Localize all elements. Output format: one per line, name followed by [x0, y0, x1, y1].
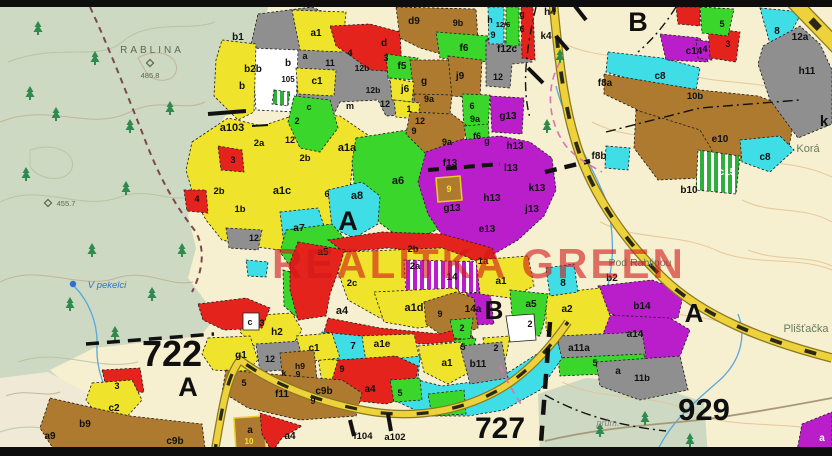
map-parcel — [448, 56, 482, 98]
map-label: b10 — [680, 185, 698, 196]
map-label: 3 — [114, 381, 119, 391]
map-label: B — [628, 7, 648, 37]
map-label: 3 — [230, 155, 235, 165]
map-label: 9 — [296, 369, 301, 379]
map-label: 6 — [324, 189, 329, 199]
map-label: 2b — [407, 244, 418, 255]
map-parcel — [676, 7, 700, 26]
map-label: Pod Rablinou — [608, 257, 671, 269]
map-label: 485.8 — [141, 71, 160, 80]
map-label: g — [484, 136, 490, 146]
map-label: g — [421, 76, 427, 87]
map-label: a1 — [310, 28, 322, 39]
map-label: c9b — [315, 386, 332, 397]
map-label: a4 — [284, 431, 296, 442]
map-label: RABLINA — [120, 45, 184, 56]
map-label: A — [685, 298, 704, 328]
map-label: V pekelci — [88, 280, 127, 291]
map-label: h2 — [271, 327, 283, 338]
map-label: 9 — [490, 30, 495, 40]
map-label: a1a — [338, 142, 357, 154]
map-label: 12 — [415, 116, 425, 126]
map-label: 9a — [424, 94, 435, 104]
map-label: 9b — [453, 18, 464, 28]
map-label: 2a — [254, 138, 265, 149]
map-label: 12 — [249, 233, 259, 243]
map-label: 11b — [634, 373, 650, 384]
map-label: f5 — [398, 61, 407, 72]
map-label: 9a — [442, 137, 453, 147]
map-label: 14 — [446, 272, 458, 283]
map-label: c — [247, 317, 252, 327]
map-label: 3 — [725, 39, 730, 49]
map-label: 1b — [234, 204, 245, 215]
boundary-tick — [252, 125, 268, 126]
map-label: 5 — [592, 358, 597, 368]
map-label: a1e — [374, 339, 391, 350]
map-label: a1d — [405, 302, 424, 314]
map-label: c1 — [308, 343, 320, 354]
map-parcel — [272, 90, 290, 106]
map-label: h13 — [483, 193, 501, 204]
map-label: A — [178, 372, 198, 402]
map-label: j6 — [400, 84, 410, 95]
map-label: 5 — [397, 388, 402, 398]
map-label: a4 — [336, 305, 349, 317]
map-label: c8 — [759, 152, 771, 163]
map-label: e13 — [479, 224, 496, 235]
map-label: a14 — [627, 329, 644, 340]
map-label: d9 — [408, 16, 420, 27]
map-label: 727 — [475, 412, 525, 445]
map-label: j13 — [524, 204, 539, 215]
map-label: e10 — [712, 134, 729, 145]
map-label: a9 — [44, 431, 56, 442]
map-label: 4 — [194, 194, 199, 204]
map-label: 9 — [339, 364, 344, 374]
map-viewport: RABLINA485.8455.7V pekelciPod RablinouKo… — [0, 0, 832, 456]
map-label: 14a — [465, 304, 482, 315]
map-label: 2 — [527, 319, 532, 329]
map-label: g1 — [235, 350, 247, 361]
map-label: Plišťačka — [783, 323, 829, 335]
map-label: a103 — [220, 122, 244, 134]
map-label: b9 — [79, 419, 91, 430]
map-label: 2b — [213, 186, 224, 197]
map-label: b11 — [470, 359, 487, 370]
map-label: 7 — [350, 341, 356, 352]
map-label: f6 — [473, 131, 481, 141]
map-label: a5 — [525, 299, 537, 310]
map-label: 5 — [719, 19, 724, 29]
map-label: 2a — [410, 261, 421, 272]
map-label: 12 — [493, 72, 503, 82]
map-label: a5 — [317, 247, 329, 258]
map-label: 1 — [406, 104, 411, 114]
map-label: b14 — [633, 301, 651, 312]
map-parcel — [605, 146, 630, 170]
map-label: 2b — [299, 153, 310, 164]
map-label: 2 — [493, 343, 498, 353]
map-label: 1a — [478, 256, 489, 267]
map-label: d — [381, 38, 387, 49]
map-label: 9 — [310, 396, 315, 406]
map-label: a — [615, 366, 621, 377]
map-label: 12 — [285, 135, 295, 145]
map-label: 722 — [142, 333, 202, 374]
frame-top — [0, 0, 832, 7]
map-label: f8b — [592, 151, 607, 162]
map-label: a — [247, 425, 253, 436]
map-label: g — [519, 9, 525, 19]
map-label: B — [485, 295, 504, 325]
map-label: f8a — [598, 78, 613, 89]
map-label: 12b — [355, 63, 370, 73]
map-label: f11 — [275, 389, 289, 400]
map-label: a8 — [351, 190, 363, 202]
map-canvas: RABLINA485.8455.7V pekelciPod RablinouKo… — [0, 0, 832, 456]
map-label: k4 — [540, 31, 552, 42]
map-label: 5 — [460, 342, 465, 352]
map-label: c — [306, 102, 311, 112]
map-label: 455.7 — [57, 199, 76, 208]
map-label: 5 — [241, 378, 246, 388]
map-parcel — [390, 378, 422, 402]
map-label: h11 — [799, 66, 816, 77]
map-parcel — [700, 7, 734, 36]
map-label: m — [346, 101, 354, 111]
map-label: b1 — [232, 32, 244, 43]
map-label: f104 — [353, 431, 373, 442]
map-label: k — [820, 113, 829, 130]
map-label: c15 — [719, 167, 736, 178]
map-label: a4 — [364, 384, 376, 395]
map-label: h13 — [506, 141, 524, 152]
map-label: f13 — [443, 158, 458, 169]
map-label: 12b — [366, 85, 381, 95]
map-label: c2 — [108, 403, 120, 414]
map-label: l13 — [504, 163, 518, 174]
map-label: f6 — [460, 43, 469, 54]
map-label: 4 — [347, 48, 352, 58]
map-label: a11a — [568, 343, 590, 354]
map-label: a6 — [392, 175, 404, 187]
map-label: 12a — [792, 32, 809, 43]
map-label: 2 — [294, 116, 299, 126]
map-label: j9 — [455, 71, 465, 82]
map-label: g13 — [499, 111, 517, 122]
map-label: prům. — [595, 418, 619, 428]
map-label: b — [285, 58, 291, 69]
map-label: 2 — [459, 323, 464, 333]
map-label: a — [819, 433, 825, 444]
map-label: 8 — [774, 26, 780, 37]
map-label: 11 — [325, 58, 335, 68]
map-label: k13 — [529, 183, 546, 194]
map-label: k — [282, 368, 287, 378]
map-label: b — [239, 81, 245, 92]
map-label: h4 — [544, 7, 556, 18]
map-label: 6 — [519, 24, 524, 34]
map-label: 9 — [411, 126, 416, 136]
map-label: c8 — [654, 71, 666, 82]
map-parcel — [410, 60, 455, 96]
map-label: 105 — [281, 75, 295, 84]
map-label: 3 — [383, 53, 388, 63]
map-label: 8 — [560, 278, 566, 289]
map-label: a1c — [273, 185, 291, 197]
frame-bottom — [0, 447, 832, 456]
map-label: f12c — [497, 44, 517, 55]
map-label: 12 — [380, 99, 390, 109]
spring-dot-icon — [70, 281, 76, 287]
map-label: g13 — [443, 203, 461, 214]
map-label: a1 — [441, 358, 453, 369]
map-label: a2 — [561, 304, 573, 315]
map-label: 4 — [702, 44, 707, 54]
map-label: c1 — [311, 76, 323, 87]
map-label: 929 — [678, 392, 730, 427]
map-label: a7 — [293, 222, 305, 234]
map-label: 10 — [245, 437, 254, 446]
map-label: 10b — [687, 91, 704, 102]
map-label: b2 — [606, 273, 618, 284]
map-label: Korá — [796, 143, 820, 155]
map-label: a102 — [384, 432, 405, 443]
map-label: a1 — [495, 276, 507, 287]
map-label: h — [487, 15, 493, 25]
map-label: A — [338, 206, 358, 236]
map-label: 9 — [437, 309, 442, 319]
map-label: c9b — [166, 436, 183, 447]
map-label: 12/6 — [496, 20, 511, 29]
map-label: c14 — [686, 46, 703, 57]
map-parcel — [246, 260, 268, 277]
map-label: 6 — [469, 101, 474, 111]
map-label: 12 — [265, 354, 275, 364]
map-label: b2b — [244, 64, 262, 75]
map-label: 2c — [347, 278, 358, 289]
map-label: 9 — [446, 184, 451, 194]
map-label: 9a — [470, 114, 481, 124]
map-label: 3 — [259, 318, 264, 328]
